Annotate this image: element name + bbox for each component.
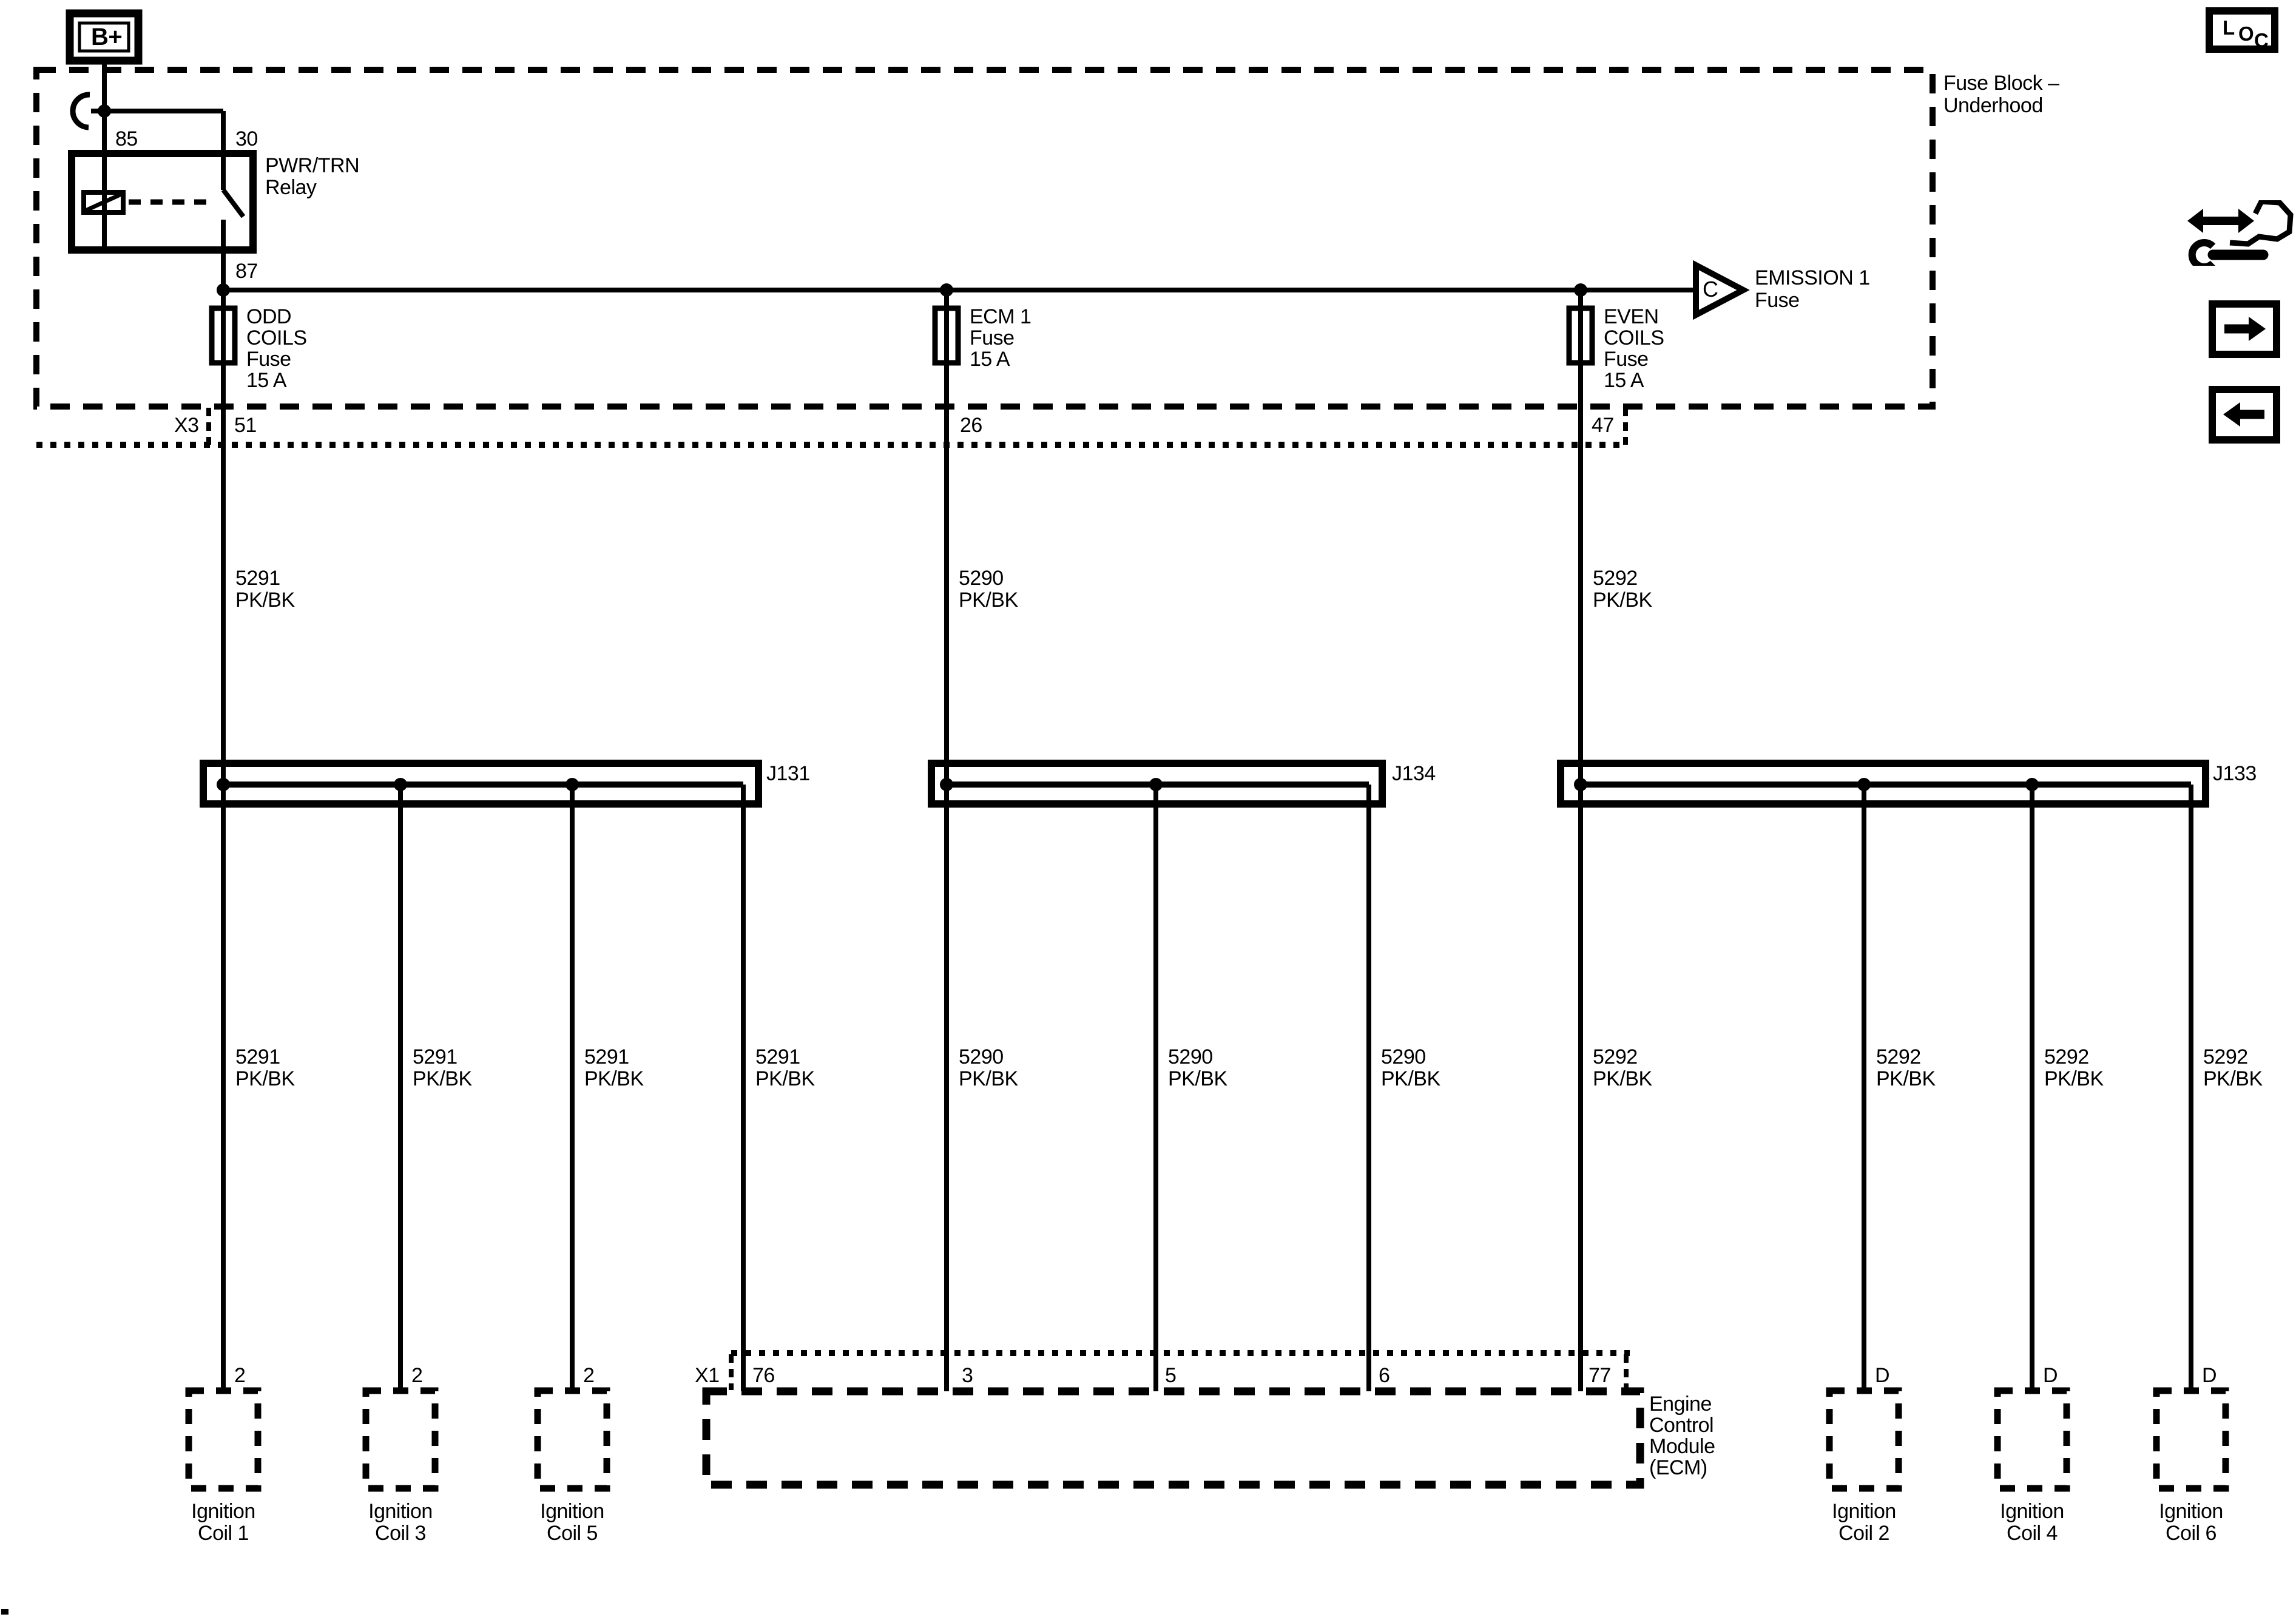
coil3-pin-label: 2 bbox=[411, 1365, 422, 1386]
branch-wire-circuit: 5292 bbox=[1876, 1047, 1921, 1067]
ecm1-fuse-label-3: 15 A bbox=[970, 349, 1010, 370]
ecm-name-line4: (ECM) bbox=[1649, 1457, 1707, 1478]
branch-wire-circuit: 5291 bbox=[235, 1047, 280, 1067]
ignition-coil-6-label: Ignition Coil 6 bbox=[2124, 1501, 2258, 1544]
odd-coils-fuse-label-1: ODD bbox=[246, 306, 291, 327]
left-arrow-icon bbox=[2216, 393, 2273, 436]
connector-x1-id: X1 bbox=[695, 1365, 720, 1386]
branch-wire-color: PK/BK bbox=[413, 1068, 472, 1089]
ecm-name-line2: Control bbox=[1649, 1415, 1714, 1436]
wiring-diagram-page: B+ Fuse Block – Underhood 85 30 87 PWR/T… bbox=[0, 0, 2296, 1617]
splice-hook-symbol bbox=[73, 95, 90, 127]
feed-wire-circuit: 5292 bbox=[1593, 568, 1638, 589]
x1-pin-5: 5 bbox=[1165, 1365, 1176, 1386]
branch-wire-color: PK/BK bbox=[235, 1068, 295, 1089]
feed-wire-color: PK/BK bbox=[959, 590, 1018, 610]
x1-pin-6: 6 bbox=[1379, 1365, 1389, 1386]
branch-wire-color: PK/BK bbox=[959, 1068, 1018, 1089]
branch-wire-circuit: 5290 bbox=[959, 1047, 1004, 1067]
coil-label-line1: Ignition bbox=[505, 1501, 639, 1522]
ignition-coil-1-box bbox=[189, 1391, 258, 1488]
branch-wire-circuit: 5292 bbox=[1593, 1047, 1638, 1067]
relay-pin-87-label: 87 bbox=[235, 261, 258, 282]
junction-j131-label: J131 bbox=[766, 763, 810, 784]
branch-wire-color: PK/BK bbox=[1593, 1068, 1652, 1089]
junction-dot bbox=[217, 778, 230, 791]
coil2-pin-label: D bbox=[1875, 1365, 1889, 1386]
branch-wire-circuit: 5291 bbox=[584, 1047, 629, 1067]
previous-page-button[interactable] bbox=[2209, 386, 2280, 444]
branch-wire-circuit: 5292 bbox=[2044, 1047, 2089, 1067]
loc-button[interactable]: L O C bbox=[2206, 7, 2278, 53]
branch-wire-circuit: 5290 bbox=[1168, 1047, 1213, 1067]
relay-name-line1: PWR/TRN bbox=[265, 155, 359, 176]
fuse-block-name-line2: Underhood bbox=[1943, 95, 2043, 116]
coil-label-line1: Ignition bbox=[2124, 1501, 2258, 1522]
x1-pin-76: 76 bbox=[752, 1365, 775, 1386]
coil4-pin-label: D bbox=[2043, 1365, 2058, 1386]
branch-wire-color: PK/BK bbox=[2044, 1068, 2104, 1089]
connector-x3-id: X3 bbox=[174, 415, 199, 436]
emission-ref-tag[interactable]: C bbox=[1703, 279, 1718, 300]
coil-label-line2: Coil 3 bbox=[334, 1522, 467, 1544]
branch-wire-circuit: 5291 bbox=[413, 1047, 458, 1067]
relay-switch-blade bbox=[223, 190, 243, 217]
ignition-coil-1-label: Ignition Coil 1 bbox=[157, 1501, 290, 1544]
fuse-block-name-line1: Fuse Block – bbox=[1943, 73, 2059, 93]
coil1-pin-label: 2 bbox=[234, 1365, 245, 1386]
x3-pin-47: 47 bbox=[1592, 415, 1614, 436]
diagram-geometry bbox=[0, 0, 2296, 1617]
x1-pin-3: 3 bbox=[962, 1365, 973, 1386]
coil6-pin-label: D bbox=[2202, 1365, 2217, 1386]
x3-pin-51: 51 bbox=[234, 415, 257, 436]
ecm1-fuse-label-1: ECM 1 bbox=[970, 306, 1031, 327]
coil-label-line2: Coil 4 bbox=[1965, 1522, 2099, 1544]
junction-dot bbox=[940, 778, 953, 791]
emission-ref-line1: EMISSION 1 bbox=[1755, 268, 1870, 288]
coil-label-line2: Coil 5 bbox=[505, 1522, 639, 1544]
ignition-coil-5-box bbox=[538, 1391, 607, 1488]
branch-wire-color: PK/BK bbox=[2203, 1068, 2263, 1089]
wrench-arrow-icon bbox=[2187, 200, 2294, 266]
loc-letter-c: C bbox=[2254, 30, 2268, 50]
x1-pin-77: 77 bbox=[1589, 1365, 1611, 1386]
next-page-button[interactable] bbox=[2209, 300, 2280, 358]
junction-j133-label: J133 bbox=[2213, 763, 2257, 784]
ignition-coil-4-label: Ignition Coil 4 bbox=[1965, 1501, 2099, 1544]
loc-letter-l: L bbox=[2223, 18, 2235, 38]
even-coils-fuse-label-2: COILS bbox=[1604, 328, 1664, 348]
relay-pin-30-label: 30 bbox=[235, 129, 258, 149]
branch-wire-color: PK/BK bbox=[1381, 1068, 1440, 1089]
branch-wire-circuit: 5290 bbox=[1381, 1047, 1426, 1067]
ecm-name-line3: Module bbox=[1649, 1436, 1715, 1457]
coil-label-line2: Coil 6 bbox=[2124, 1522, 2258, 1544]
branch-wire-circuit: 5292 bbox=[2203, 1047, 2248, 1067]
odd-coils-fuse-label-3: Fuse bbox=[246, 349, 291, 370]
relay-name-line2: Relay bbox=[265, 177, 316, 198]
even-coils-fuse-label-4: 15 A bbox=[1604, 370, 1644, 391]
junction-dot bbox=[1574, 778, 1587, 791]
coil-label-line1: Ignition bbox=[1797, 1501, 1931, 1522]
feed-wire-color: PK/BK bbox=[235, 590, 295, 610]
branch-wire-color: PK/BK bbox=[1168, 1068, 1227, 1089]
odd-coils-fuse-label-2: COILS bbox=[246, 328, 307, 348]
ecm-name-line1: Engine bbox=[1649, 1394, 1712, 1414]
emission-ref-line2: Fuse bbox=[1755, 290, 1800, 311]
ignition-coil-3-label: Ignition Coil 3 bbox=[334, 1501, 467, 1544]
ignition-coil-6-box bbox=[2156, 1391, 2226, 1488]
even-coils-fuse-label-1: EVEN bbox=[1604, 306, 1659, 327]
relay-pin-85-label: 85 bbox=[115, 129, 138, 149]
loc-letter-o: O bbox=[2238, 24, 2254, 44]
coil-label-line2: Coil 1 bbox=[157, 1522, 290, 1544]
coil-label-line2: Coil 2 bbox=[1797, 1522, 1931, 1544]
coil5-pin-label: 2 bbox=[583, 1365, 594, 1386]
ignition-coil-4-box bbox=[1997, 1391, 2067, 1488]
branch-wire-color: PK/BK bbox=[1876, 1068, 1936, 1089]
branch-wire-color: PK/BK bbox=[755, 1068, 815, 1089]
coil-label-line1: Ignition bbox=[157, 1501, 290, 1522]
right-arrow-icon bbox=[2216, 308, 2273, 351]
ignition-coil-2-box bbox=[1829, 1391, 1899, 1488]
diagnostic-tool-button[interactable] bbox=[2187, 200, 2294, 266]
junction-j134-label: J134 bbox=[1392, 763, 1436, 784]
battery-terminal-label: B+ bbox=[91, 25, 122, 49]
coil-label-line1: Ignition bbox=[334, 1501, 467, 1522]
ignition-coil-2-label: Ignition Coil 2 bbox=[1797, 1501, 1931, 1544]
feed-wire-circuit: 5291 bbox=[235, 568, 280, 589]
ignition-coil-3-box bbox=[366, 1391, 435, 1488]
ecm-box bbox=[706, 1391, 1640, 1485]
ignition-coil-5-label: Ignition Coil 5 bbox=[505, 1501, 639, 1544]
feed-wire-color: PK/BK bbox=[1593, 590, 1652, 610]
junction-dot bbox=[98, 104, 111, 118]
print-artifact-dot bbox=[1, 1609, 8, 1615]
coil-label-line1: Ignition bbox=[1965, 1501, 2099, 1522]
even-coils-fuse-label-3: Fuse bbox=[1604, 349, 1649, 370]
branch-wire-color: PK/BK bbox=[584, 1068, 644, 1089]
feed-wire-circuit: 5290 bbox=[959, 568, 1004, 589]
branch-wire-circuit: 5291 bbox=[755, 1047, 800, 1067]
x3-pin-26: 26 bbox=[960, 415, 982, 436]
ecm1-fuse-label-2: Fuse bbox=[970, 328, 1015, 348]
odd-coils-fuse-label-4: 15 A bbox=[246, 370, 286, 391]
